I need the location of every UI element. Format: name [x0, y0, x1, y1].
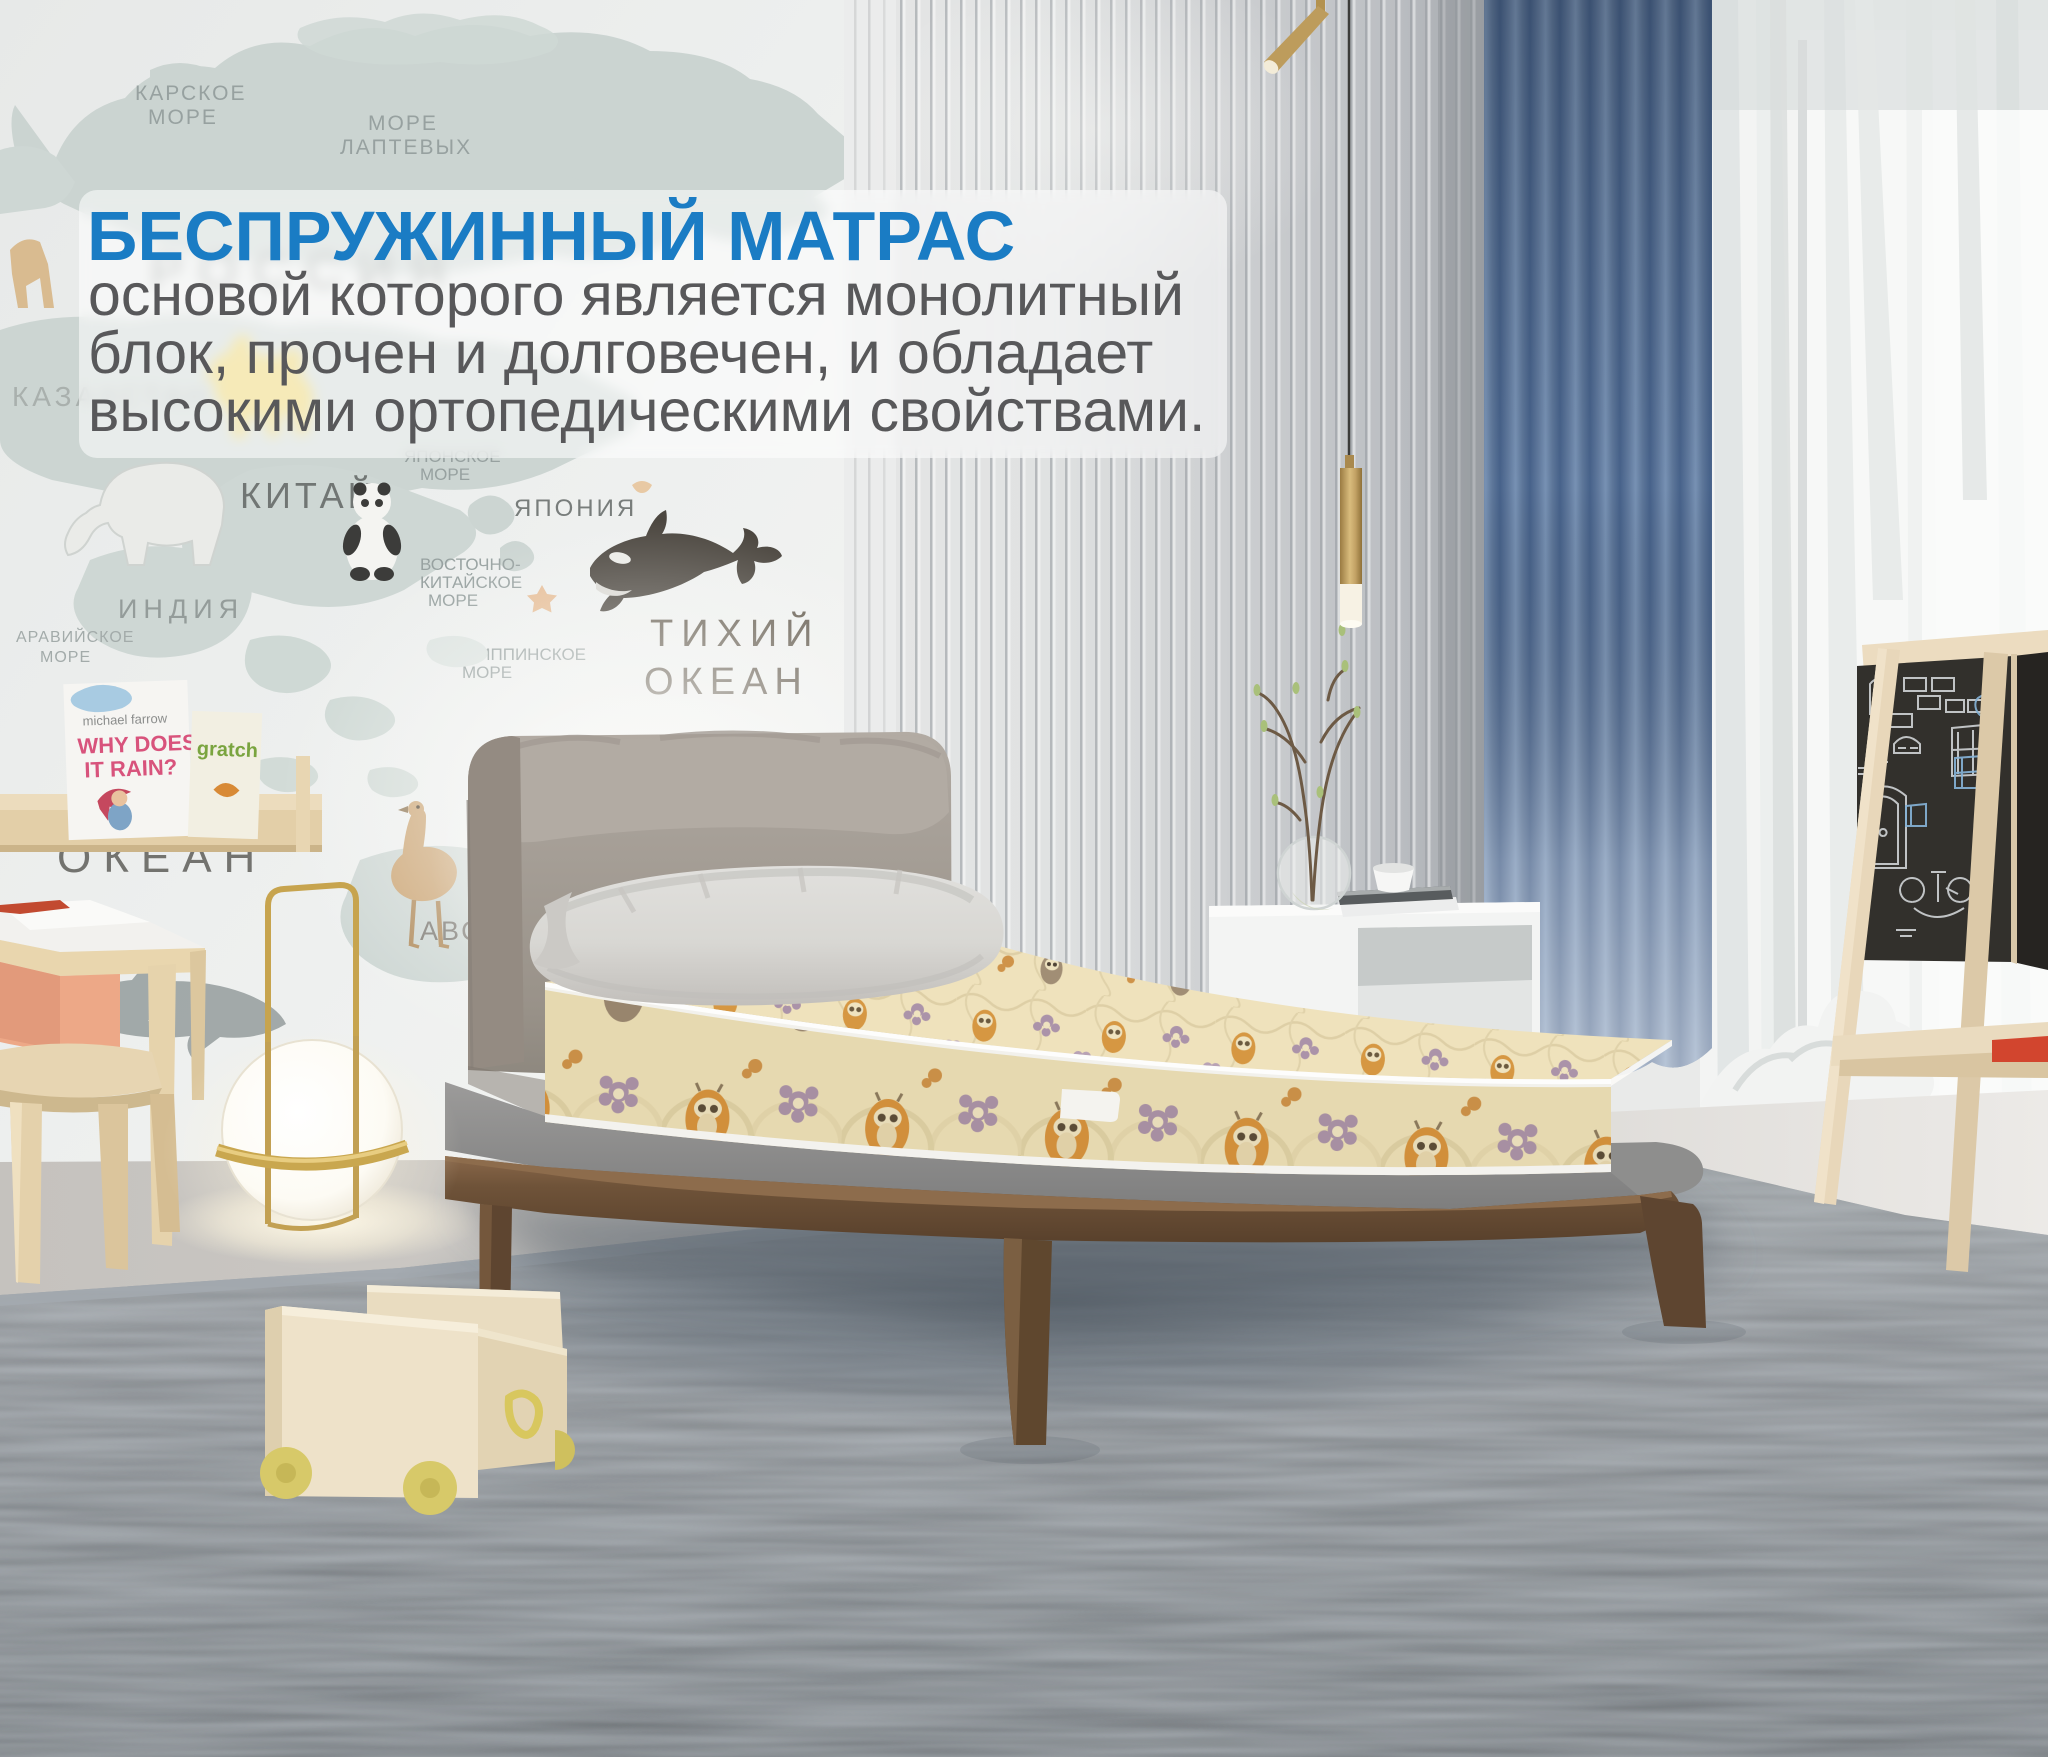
svg-text:WHY DOES: WHY DOES — [77, 730, 197, 759]
svg-text:МОРЕ: МОРЕ — [420, 465, 470, 484]
svg-text:МОРЕ: МОРЕ — [148, 106, 218, 129]
svg-text:gratch: gratch — [197, 738, 259, 762]
svg-text:IT RAIN?: IT RAIN? — [84, 754, 178, 782]
svg-text:ЯПОНИЯ: ЯПОНИЯ — [514, 495, 637, 522]
svg-text:ЛАПТЕВЫХ: ЛАПТЕВЫХ — [340, 136, 472, 159]
svg-text:ИНДИЯ: ИНДИЯ — [118, 594, 244, 624]
svg-text:МОРЕ: МОРЕ — [368, 112, 438, 135]
svg-text:КАРСКОЕ: КАРСКОЕ — [135, 82, 247, 105]
svg-text:michael farrow: michael farrow — [82, 711, 168, 729]
svg-text:АРАВИЙСКОЕ: АРАВИЙСКОЕ — [16, 627, 134, 646]
svg-text:МОРЕ: МОРЕ — [40, 649, 91, 666]
